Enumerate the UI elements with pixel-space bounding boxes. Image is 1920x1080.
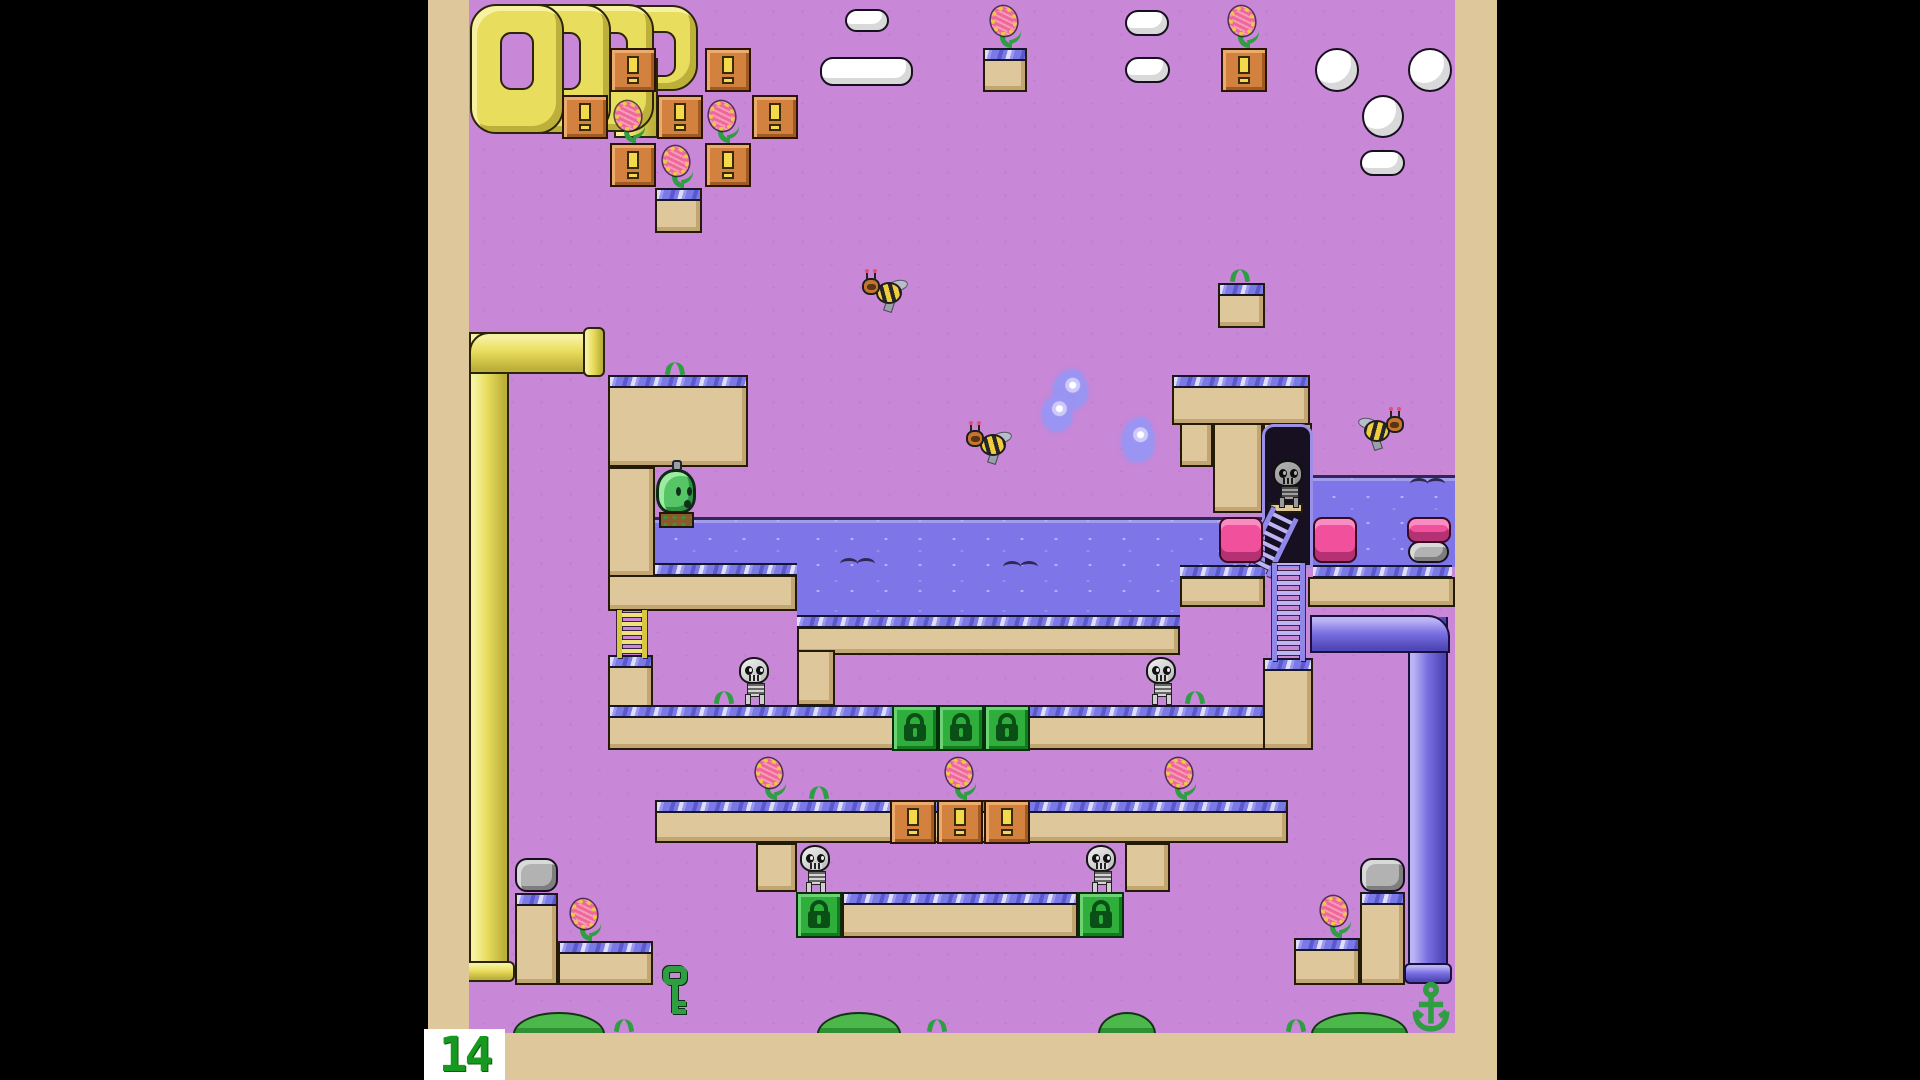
grass-tuft bbox=[1284, 1018, 1308, 1033]
platform-edge bbox=[1362, 892, 1403, 905]
bush bbox=[1311, 1012, 1408, 1033]
platform-edge bbox=[1220, 283, 1263, 296]
cove-strip bbox=[1180, 577, 1265, 607]
skeleton-eye-icon bbox=[745, 666, 753, 675]
key-bow bbox=[663, 966, 687, 985]
white-ball bbox=[1362, 95, 1404, 138]
pipe-loop bbox=[470, 4, 564, 134]
deep-pool-underside bbox=[797, 627, 1180, 655]
yellow-pipe-cap bbox=[469, 961, 515, 982]
skeleton-enemy bbox=[738, 657, 772, 705]
bee-antenna bbox=[874, 273, 876, 280]
skeleton-leg bbox=[1106, 882, 1112, 893]
bush bbox=[1098, 1012, 1156, 1033]
shallow-pool-underside bbox=[608, 575, 797, 611]
score-counter: 14 bbox=[424, 1029, 505, 1080]
orange-exclaim-block bbox=[562, 95, 608, 139]
blue-pipe-cap bbox=[1404, 963, 1452, 984]
yellow-pipe-arm bbox=[469, 332, 585, 374]
keyhole-icon bbox=[1005, 728, 1009, 737]
exclamation-icon bbox=[1238, 56, 1250, 84]
water-ripple bbox=[1410, 478, 1450, 488]
platform-edge bbox=[1296, 938, 1358, 951]
key-tooth bbox=[678, 1001, 686, 1006]
stair-right-slab bbox=[1294, 938, 1360, 985]
upper-right-sub-a bbox=[1180, 423, 1213, 467]
slime-eye-icon bbox=[676, 487, 681, 496]
white-ball bbox=[1408, 48, 1452, 92]
float-block-topcenter bbox=[983, 48, 1027, 92]
skeleton-leg bbox=[1152, 694, 1158, 705]
cloud bbox=[845, 9, 889, 32]
water-ripple bbox=[840, 558, 880, 568]
slime-eye-icon bbox=[687, 487, 692, 496]
pool-bottom-edge bbox=[655, 563, 797, 576]
skeleton-leg bbox=[806, 882, 812, 893]
grass-tuft bbox=[925, 1018, 949, 1033]
white-ball bbox=[1315, 48, 1359, 92]
exclamation-icon bbox=[907, 808, 919, 836]
mid-right-step bbox=[1263, 658, 1313, 750]
skull-head bbox=[1086, 845, 1116, 872]
piranha-flower bbox=[1226, 6, 1260, 48]
skeleton-mouth-icon bbox=[1096, 863, 1108, 869]
skeleton-enemy bbox=[799, 845, 833, 893]
lockbar-slab bbox=[842, 892, 1078, 938]
bee-head bbox=[862, 278, 880, 295]
orange-exclaim-block bbox=[752, 95, 798, 139]
tier2-right-column bbox=[1125, 843, 1170, 892]
piranha-flower bbox=[568, 899, 602, 941]
rightpool-strip bbox=[1308, 577, 1455, 607]
green-lock-block bbox=[938, 705, 984, 751]
skeleton-mouth-icon bbox=[810, 863, 822, 869]
orange-exclaim-block bbox=[984, 800, 1030, 844]
green-lock-block bbox=[984, 705, 1030, 751]
pool-bottom-edge bbox=[797, 615, 1180, 628]
player-slime bbox=[656, 460, 698, 528]
pink-pipe-segment bbox=[1313, 517, 1357, 563]
bee-enemy bbox=[966, 424, 1012, 464]
anchor-item bbox=[1409, 982, 1453, 1033]
keyhole-icon bbox=[817, 915, 821, 924]
water-ripple bbox=[1003, 561, 1043, 571]
bee-antenna bbox=[866, 273, 868, 280]
exclamation-icon bbox=[674, 103, 686, 131]
piranha-flower bbox=[1318, 896, 1352, 938]
platform-edge bbox=[985, 48, 1025, 61]
grass-tuft bbox=[1228, 268, 1252, 283]
skull-head bbox=[1146, 657, 1176, 684]
stair-left-slab bbox=[558, 941, 653, 985]
skeleton-eye-icon bbox=[756, 666, 764, 675]
key-item bbox=[663, 966, 689, 1014]
skeleton-leg bbox=[759, 694, 765, 705]
counter-value: 14 bbox=[439, 1027, 491, 1080]
purple-ladder[interactable] bbox=[1272, 563, 1305, 661]
left-wall-column bbox=[608, 467, 655, 577]
platform-edge bbox=[560, 941, 651, 954]
wisp-sparkle bbox=[1122, 418, 1154, 462]
platform-edge bbox=[1174, 375, 1308, 388]
skeleton-in-doorway bbox=[1272, 460, 1306, 508]
piranha-flower bbox=[943, 758, 977, 800]
bee-head bbox=[966, 430, 984, 447]
skeleton-enemy bbox=[1145, 657, 1179, 705]
skeleton-mouth-icon bbox=[749, 675, 761, 681]
skeleton-leg bbox=[1293, 497, 1299, 508]
grass-tuft bbox=[663, 361, 687, 376]
pink-pipe-segment bbox=[1219, 517, 1263, 563]
keyhole-icon bbox=[959, 728, 963, 737]
pipe-loop-hole bbox=[500, 32, 534, 90]
bush bbox=[817, 1012, 901, 1033]
keyhole-icon bbox=[1099, 915, 1103, 924]
upper-right-slab bbox=[1172, 375, 1310, 425]
slime-pot-base bbox=[659, 512, 694, 528]
skeleton-leg bbox=[1166, 694, 1172, 705]
piranha-flower bbox=[988, 6, 1022, 48]
key-tooth bbox=[678, 1009, 686, 1014]
skeleton-eye-icon bbox=[1163, 666, 1171, 675]
skeleton-leg bbox=[820, 882, 826, 893]
skeleton-eye-icon bbox=[1152, 666, 1160, 675]
blue-pipe-vertical bbox=[1408, 617, 1448, 965]
grass-tuft bbox=[1183, 690, 1207, 705]
yellow-pipe-rim bbox=[583, 327, 605, 377]
bee-antenna bbox=[1390, 411, 1392, 418]
orange-exclaim-block bbox=[610, 48, 656, 92]
deep-pool-left-column bbox=[797, 650, 835, 706]
green-lock-block bbox=[892, 705, 938, 751]
orange-exclaim-block bbox=[1221, 48, 1267, 92]
bush bbox=[513, 1012, 605, 1033]
piranha-flower bbox=[1163, 758, 1197, 800]
skeleton-leg bbox=[1279, 497, 1285, 508]
skeleton-eye-icon bbox=[806, 854, 814, 863]
exclamation-icon bbox=[1001, 808, 1013, 836]
game-window: 14 bbox=[0, 0, 1920, 1080]
skull-head bbox=[1273, 460, 1303, 487]
skeleton-eye-icon bbox=[1279, 469, 1287, 478]
yellow-ladder[interactable] bbox=[617, 610, 647, 658]
skeleton-enemy bbox=[1085, 845, 1119, 893]
orange-exclaim-block bbox=[705, 143, 751, 187]
bee-enemy bbox=[1358, 410, 1404, 450]
cloud bbox=[820, 57, 913, 86]
bee-antenna bbox=[1398, 411, 1400, 418]
grass-tuft bbox=[807, 785, 831, 800]
skeleton-leg bbox=[1092, 882, 1098, 893]
piranha-flower bbox=[612, 101, 646, 143]
float-block-cluster bbox=[655, 188, 702, 233]
platform-edge bbox=[657, 188, 700, 201]
blue-pipe-arm bbox=[1310, 615, 1450, 653]
bee-antenna bbox=[978, 425, 980, 432]
skeleton-leg bbox=[745, 694, 751, 705]
gray-capsule bbox=[1360, 858, 1405, 892]
skeleton-eye-icon bbox=[1290, 469, 1298, 478]
stair-left-column bbox=[515, 893, 558, 985]
orange-exclaim-block bbox=[657, 95, 703, 139]
upper-left-slab bbox=[608, 375, 748, 467]
skull-head bbox=[800, 845, 830, 872]
exclamation-icon bbox=[627, 56, 639, 84]
upper-right-sub-b bbox=[1213, 423, 1263, 513]
cloud bbox=[1125, 10, 1169, 36]
bee-head bbox=[1386, 416, 1404, 433]
slime-body bbox=[656, 469, 696, 514]
skeleton-eye-icon bbox=[817, 854, 825, 863]
exclamation-icon bbox=[769, 103, 781, 131]
gray-capsule bbox=[1408, 541, 1449, 563]
tier2-left-column bbox=[756, 843, 797, 892]
slime-mouth-icon bbox=[684, 500, 691, 508]
skeleton-eye-icon bbox=[1092, 854, 1100, 863]
keyhole-icon bbox=[913, 728, 917, 737]
skull-head bbox=[739, 657, 769, 684]
exclamation-icon bbox=[722, 151, 734, 179]
bee-enemy bbox=[862, 272, 908, 312]
exclamation-icon bbox=[627, 151, 639, 179]
grass-tuft bbox=[612, 1018, 636, 1033]
orange-exclaim-block bbox=[610, 143, 656, 187]
bee-antenna bbox=[970, 425, 972, 432]
cloud bbox=[1360, 150, 1405, 176]
orange-exclaim-block bbox=[937, 800, 983, 844]
orange-exclaim-block bbox=[890, 800, 936, 844]
exclamation-icon bbox=[722, 56, 734, 84]
piranha-flower bbox=[706, 101, 740, 143]
orange-exclaim-block bbox=[705, 48, 751, 92]
skeleton-mouth-icon bbox=[1283, 478, 1295, 484]
green-lock-block bbox=[796, 892, 842, 938]
platform-edge bbox=[517, 893, 556, 906]
grass-tuft bbox=[712, 690, 736, 705]
exclamation-icon bbox=[579, 103, 591, 131]
gray-capsule bbox=[515, 858, 558, 892]
skeleton-mouth-icon bbox=[1156, 675, 1168, 681]
game-canvas[interactable] bbox=[469, 0, 1455, 1033]
stair-right-column bbox=[1360, 892, 1405, 985]
pink-pipe-segment bbox=[1407, 517, 1451, 543]
exclamation-icon bbox=[954, 808, 966, 836]
piranha-flower bbox=[660, 146, 694, 188]
yellow-pipe-vertical bbox=[469, 332, 509, 963]
piranha-flower bbox=[753, 758, 787, 800]
cloud bbox=[1125, 57, 1170, 83]
wisp-sparkle bbox=[1042, 395, 1072, 431]
green-lock-block bbox=[1078, 892, 1124, 938]
platform-edge bbox=[844, 892, 1076, 905]
float-block-grasstop bbox=[1218, 283, 1265, 328]
level-frame bbox=[428, 0, 1497, 1080]
skeleton-eye-icon bbox=[1103, 854, 1111, 863]
pool-bottom-edge bbox=[1313, 565, 1452, 578]
